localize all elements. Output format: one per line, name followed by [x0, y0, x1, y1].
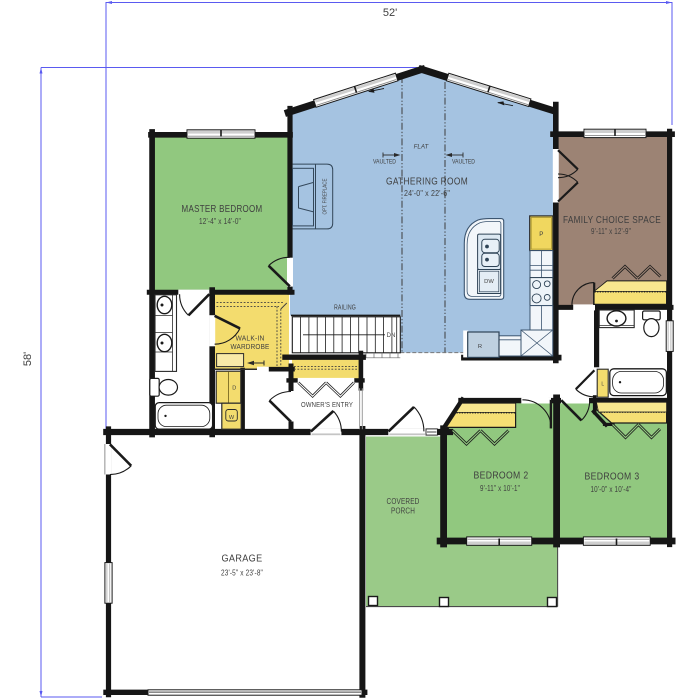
- svg-text:WARDROBE: WARDROBE: [231, 342, 270, 351]
- svg-text:OPT. FIREPLACE: OPT. FIREPLACE: [323, 178, 329, 214]
- svg-text:52': 52': [383, 7, 397, 19]
- svg-text:BEDROOM 2: BEDROOM 2: [474, 470, 529, 482]
- svg-text:D: D: [232, 386, 236, 392]
- svg-text:OWNER'S ENTRY: OWNER'S ENTRY: [301, 400, 353, 409]
- svg-text:VAULTED: VAULTED: [373, 159, 396, 166]
- svg-text:58': 58': [22, 352, 34, 366]
- svg-text:GATHERING ROOM: GATHERING ROOM: [386, 176, 468, 188]
- svg-text:VAULTED: VAULTED: [452, 159, 475, 166]
- svg-text:L: L: [601, 382, 604, 388]
- svg-text:FLAT: FLAT: [414, 144, 430, 151]
- svg-text:12'-4" x 14'-0": 12'-4" x 14'-0": [199, 217, 241, 226]
- svg-text:24'-0" x 22'-6": 24'-0" x 22'-6": [404, 189, 450, 198]
- svg-text:P: P: [539, 231, 543, 238]
- svg-text:9'-11" x 12'-9": 9'-11" x 12'-9": [591, 227, 631, 236]
- svg-text:23'-5" x 23'-8": 23'-5" x 23'-8": [221, 569, 263, 578]
- svg-text:GARAGE: GARAGE: [222, 553, 263, 565]
- svg-text:W: W: [229, 415, 235, 421]
- svg-text:DN: DN: [387, 333, 396, 339]
- svg-text:DW: DW: [484, 279, 494, 285]
- svg-text:BEDROOM 3: BEDROOM 3: [585, 471, 640, 483]
- svg-text:RAILING: RAILING: [334, 303, 356, 312]
- svg-text:PORCH: PORCH: [391, 507, 415, 516]
- svg-text:COVERED: COVERED: [387, 497, 420, 506]
- svg-text:R: R: [478, 344, 482, 350]
- svg-text:10'-0" x 10'-4": 10'-0" x 10'-4": [591, 485, 632, 494]
- svg-text:MASTER BEDROOM: MASTER BEDROOM: [182, 203, 263, 215]
- svg-text:9'-11" x 10'-1": 9'-11" x 10'-1": [480, 484, 520, 493]
- svg-text:FAMILY CHOICE SPACE: FAMILY CHOICE SPACE: [563, 214, 661, 226]
